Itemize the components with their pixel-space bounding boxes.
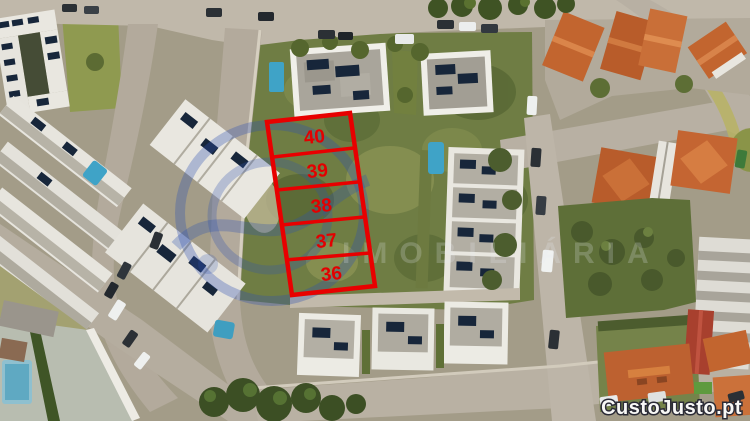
- pool: [213, 319, 236, 339]
- plot-label-37: 37: [315, 230, 338, 253]
- aerial-photo-listing: IMOBILIÁRIA 40 39 38 37 36 CustoJusto.pt: [0, 0, 750, 421]
- villa-grey-roof-2: [420, 50, 493, 116]
- garden: [392, 50, 418, 115]
- portal-watermark: CustoJusto.pt: [601, 397, 742, 419]
- pool: [5, 364, 29, 400]
- agency-watermark-text: IMOBILIÁRIA: [342, 236, 661, 270]
- hedge: [436, 324, 444, 368]
- plot-label-40: 40: [303, 126, 326, 149]
- pool: [428, 142, 444, 174]
- aerial-photo: IMOBILIÁRIA 40 39 38 37 36 CustoJusto.pt: [0, 0, 750, 421]
- plot-label-36: 36: [320, 263, 343, 286]
- plot-label-38: 38: [310, 195, 333, 218]
- hedge: [362, 330, 370, 374]
- pool: [269, 62, 284, 92]
- lawn-patch: [694, 382, 712, 394]
- tree: [397, 87, 413, 103]
- tree: [86, 53, 104, 71]
- plot-label-39: 39: [306, 160, 329, 183]
